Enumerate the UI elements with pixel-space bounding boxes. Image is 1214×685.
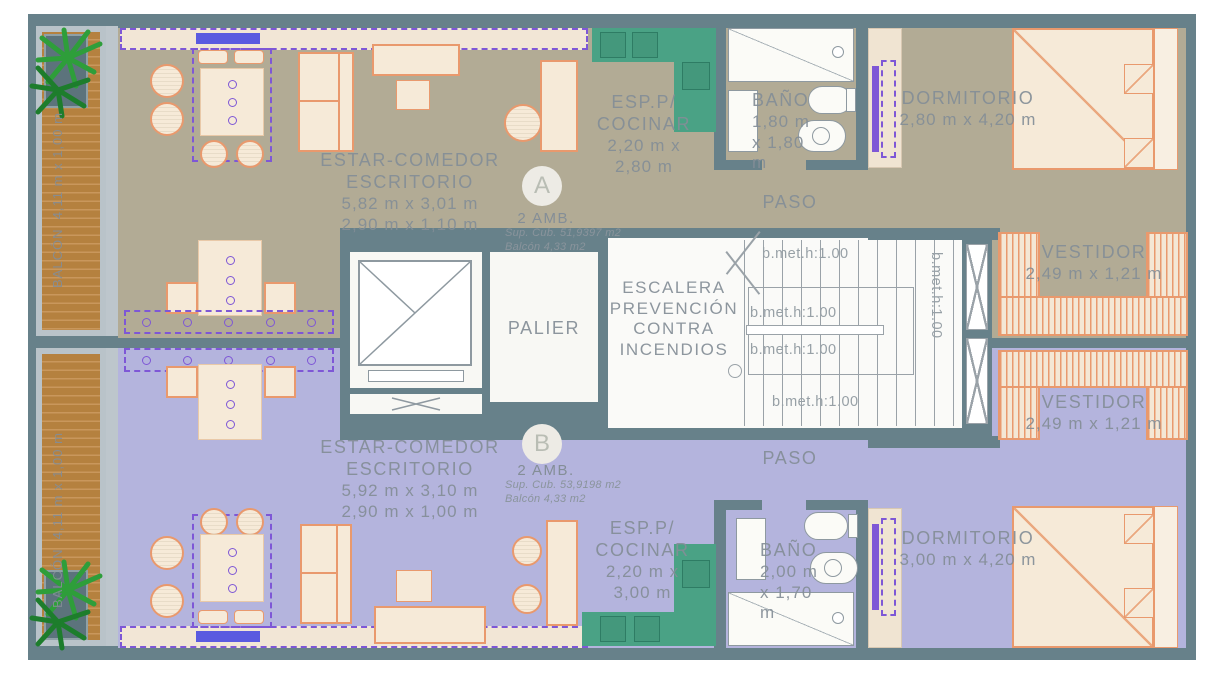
sideboard-b bbox=[374, 606, 486, 644]
vestidor-b-closet-top bbox=[998, 350, 1188, 388]
pouf bbox=[150, 536, 184, 570]
tv-table-b bbox=[396, 570, 432, 602]
shelf-strip-a bbox=[124, 310, 334, 334]
stair-label-line1: ESCALERA bbox=[608, 278, 740, 299]
bedroom-a-label: DORMITORIO 2,80 m x 4,20 m bbox=[878, 88, 1058, 131]
living-b-dim1: 5,92 m x 3,10 m bbox=[290, 481, 530, 502]
table-dot bbox=[228, 584, 237, 593]
pouf bbox=[150, 102, 184, 136]
stair-exit-door-top bbox=[966, 244, 988, 330]
plant-icon bbox=[28, 24, 114, 120]
stair-rail-height-label: b.met.h:1.00 bbox=[750, 342, 837, 358]
living-b-name2: ESCRITORIO bbox=[290, 459, 530, 481]
dining-chair-round bbox=[200, 140, 228, 168]
stair-handrail bbox=[746, 325, 884, 335]
living-a-dim1: 5,82 m x 3,01 m bbox=[290, 194, 530, 215]
sofa-b-cushion-line bbox=[302, 572, 336, 574]
balcony-b-dim: 4,11 m x 1,00 m bbox=[50, 432, 65, 539]
stove-icon bbox=[600, 616, 626, 642]
facade-strip-a bbox=[106, 26, 118, 336]
bed-a-pillow bbox=[1124, 138, 1154, 168]
kitchen-b-dim1: 2,20 m x bbox=[585, 562, 700, 583]
sofa-b-cushion-line bbox=[336, 526, 338, 622]
wall-paso-vestidor-b bbox=[868, 436, 1000, 448]
bath-a-dim2: x 1,80 m bbox=[752, 133, 818, 174]
bedroom-a-dim: 2,80 m x 4,20 m bbox=[878, 110, 1058, 131]
table-dot bbox=[226, 256, 235, 265]
stair-label-line4: INCENDIOS bbox=[608, 340, 740, 361]
sink-icon bbox=[632, 32, 658, 58]
counter-appliance-icon bbox=[682, 62, 710, 90]
living-a-name2: ESCRITORIO bbox=[290, 172, 530, 194]
desk-a bbox=[372, 44, 460, 76]
table-dot bbox=[226, 420, 235, 429]
vestidor-a-closet-bottom bbox=[998, 296, 1188, 336]
table-dot bbox=[228, 566, 237, 575]
pouf bbox=[512, 536, 542, 566]
stair-label-line3: CONTRA bbox=[608, 319, 740, 340]
stair-rail-height-label: b.met.h:1.00 bbox=[772, 394, 859, 410]
shelf-dot bbox=[307, 318, 316, 327]
stair-label-line2: PREVENCIÓN bbox=[608, 299, 740, 320]
plant-icon bbox=[28, 556, 114, 652]
bath-b-label: BAÑO 2,00 m x 1,70 m bbox=[760, 540, 826, 624]
table-dot bbox=[226, 380, 235, 389]
bath-a-label: BAÑO 1,80 m x 1,80 m bbox=[752, 90, 818, 174]
unit-b-badge: B bbox=[522, 424, 562, 464]
kitchen-b-name1: ESP.P/ bbox=[585, 518, 700, 540]
unit-b-balc: Balcón 4,33 m2 bbox=[505, 492, 635, 506]
toilet-b-tank bbox=[848, 514, 858, 538]
kitchen-a-name2: COCINAR bbox=[588, 114, 700, 136]
table-dot bbox=[228, 80, 237, 89]
dining-chair-square bbox=[166, 366, 198, 398]
vestidor-a-dim: 2,49 m x 1,21 m bbox=[1008, 264, 1180, 285]
vestidor-a-label: VESTIDOR 2,49 m x 1,21 m bbox=[1008, 242, 1180, 285]
dining-chair-round bbox=[200, 508, 228, 536]
sink-icon bbox=[634, 616, 660, 642]
living-a-name1: ESTAR-COMEDOR bbox=[290, 150, 530, 172]
wall-bath-top-b bbox=[806, 500, 868, 510]
kitchen-a-dim2: 2,80 m bbox=[588, 157, 700, 178]
living-a-dim2: 2,90 m x 1,10 m bbox=[290, 215, 530, 236]
pouf bbox=[150, 584, 184, 618]
bed-a-pillow bbox=[1124, 64, 1154, 94]
dining-chair-round bbox=[236, 508, 264, 536]
dining-chair bbox=[198, 50, 228, 64]
sofa-a-cushion-line bbox=[300, 100, 338, 102]
balcony-a-dim: 4,11 m x 1,00 m bbox=[50, 112, 65, 219]
kitchen-a-name1: ESP.P/ bbox=[588, 92, 700, 114]
elevator-icon bbox=[358, 260, 472, 366]
bath-b-name: BAÑO bbox=[760, 540, 826, 562]
vestidor-b-label: VESTIDOR 2,49 m x 1,21 m bbox=[1008, 392, 1180, 435]
desk-chair-a bbox=[396, 80, 430, 110]
table-dot bbox=[226, 276, 235, 285]
unit-b-window-blue-bar bbox=[196, 631, 260, 642]
shelf-dot bbox=[224, 318, 233, 327]
table-dot bbox=[226, 400, 235, 409]
cabinet-b bbox=[546, 520, 578, 626]
dining-chair bbox=[198, 610, 228, 624]
stair-rail-height-label: b.met.h:1.00 bbox=[762, 246, 849, 262]
bath-a-name: BAÑO bbox=[752, 90, 818, 112]
living-b-dim2: 2,90 m x 1,00 m bbox=[290, 502, 530, 523]
vestidor-a-name: VESTIDOR bbox=[1008, 242, 1180, 264]
stair-start-circle bbox=[728, 364, 742, 378]
toilet-b bbox=[804, 512, 848, 540]
kitchen-b-name2: COCINAR bbox=[585, 540, 700, 562]
bidet-b-bowl bbox=[824, 559, 842, 577]
balcony-a-label: BALCÓN 4,11 m x 1,00 m bbox=[50, 100, 66, 300]
shelf-dot bbox=[183, 318, 192, 327]
kitchen-b-label: ESP.P/ COCINAR 2,20 m x 3,00 m bbox=[585, 518, 700, 603]
floor-plan-canvas: BALCÓN 4,11 m x 1,00 m BALCÓN 4,11 m x 1… bbox=[0, 0, 1214, 685]
bedroom-b-label: DORMITORIO 3,00 m x 4,20 m bbox=[878, 528, 1058, 571]
living-b-label: ESTAR-COMEDOR ESCRITORIO 5,92 m x 3,10 m… bbox=[290, 437, 530, 522]
shelf-dot bbox=[142, 318, 151, 327]
unit-b-window-strip bbox=[120, 626, 588, 648]
table-dot bbox=[226, 296, 235, 305]
bed-b-headboard bbox=[1154, 506, 1178, 648]
vestidor-b-name: VESTIDOR bbox=[1008, 392, 1180, 414]
pouf bbox=[512, 584, 542, 614]
sofa-a-cushion-line bbox=[338, 54, 340, 150]
bed-b-pillow bbox=[1124, 588, 1154, 618]
shelf-dot bbox=[307, 356, 316, 365]
bath-a-dim1: 1,80 m bbox=[752, 112, 818, 133]
palier-label: PALIER bbox=[490, 318, 598, 340]
unit-b-sup: Sup. Cub. 53,9198 m2 bbox=[505, 478, 635, 492]
bath-b-dim1: 2,00 m bbox=[760, 562, 826, 583]
sofa-a bbox=[298, 52, 354, 152]
dining-chair-round bbox=[236, 140, 264, 168]
unit-a-window-blue-bar bbox=[196, 33, 260, 44]
balcony-b-name: BALCÓN bbox=[50, 549, 65, 608]
table-dot bbox=[228, 116, 237, 125]
duct-bowtie-icon bbox=[390, 396, 442, 412]
bath-b-dim2: x 1,70 m bbox=[760, 583, 826, 624]
stair-rail-height-label: b.met.h:1.00 bbox=[750, 305, 837, 321]
bedroom-b-name: DORMITORIO bbox=[878, 528, 1058, 550]
unit-b-type: 2 AMB. bbox=[516, 462, 576, 479]
dining-chair-square bbox=[264, 366, 296, 398]
kitchen-a-label: ESP.P/ COCINAR 2,20 m x 2,80 m bbox=[588, 92, 700, 177]
shower-head-icon bbox=[832, 46, 844, 58]
dining-chair bbox=[234, 610, 264, 624]
wall-paso-vestidor-a bbox=[868, 228, 1000, 240]
stair-room-label: ESCALERA PREVENCIÓN CONTRA INCENDIOS bbox=[608, 278, 740, 361]
paso-a-label: PASO bbox=[750, 192, 830, 214]
paso-b-label: PASO bbox=[750, 448, 830, 470]
unit-a-sup: Sup. Cub. 51,9397 m2 bbox=[505, 226, 635, 240]
balcony-a-name: BALCÓN bbox=[50, 229, 65, 288]
stove-icon bbox=[600, 32, 626, 58]
sofa-b bbox=[300, 524, 352, 624]
unit-a-badge: A bbox=[522, 166, 562, 206]
living-a-label: ESTAR-COMEDOR ESCRITORIO 5,82 m x 3,01 m… bbox=[290, 150, 530, 235]
bed-b-pillow bbox=[1124, 514, 1154, 544]
dining-chair bbox=[234, 50, 264, 64]
balcony-b-label: BALCÓN 4,11 m x 1,00 m bbox=[50, 420, 66, 620]
unit-a-balc: Balcón 4,33 m2 bbox=[505, 240, 635, 254]
living-b-name1: ESTAR-COMEDOR bbox=[290, 437, 530, 459]
bedroom-a-name: DORMITORIO bbox=[878, 88, 1058, 110]
elevator-door bbox=[368, 370, 464, 382]
desk-a-side bbox=[540, 60, 578, 152]
shower-head-icon bbox=[832, 612, 844, 624]
wall-bath-top-b bbox=[714, 500, 762, 510]
shelf-dot bbox=[142, 356, 151, 365]
shelf-dot bbox=[183, 356, 192, 365]
stair-exit-door-bottom bbox=[966, 338, 988, 424]
kitchen-b-dim2: 3,00 m bbox=[585, 583, 700, 604]
vestidor-b-dim: 2,49 m x 1,21 m bbox=[1008, 414, 1180, 435]
unit-a-window-strip bbox=[120, 28, 588, 50]
shelf-dot bbox=[266, 318, 275, 327]
shelf-dot bbox=[266, 356, 275, 365]
table-dot bbox=[228, 548, 237, 557]
bed-a-headboard bbox=[1154, 28, 1178, 170]
pouf bbox=[504, 104, 542, 142]
kitchen-a-dim1: 2,20 m x bbox=[588, 136, 700, 157]
facade-strip-b bbox=[106, 348, 118, 646]
bedroom-b-dim: 3,00 m x 4,20 m bbox=[878, 550, 1058, 571]
unit-a-type: 2 AMB. bbox=[516, 210, 576, 227]
pouf bbox=[150, 64, 184, 98]
stair-rail-height-label-vertical: b.met.h:1.00 bbox=[928, 252, 944, 422]
table-dot bbox=[228, 98, 237, 107]
wall-bath-right-a bbox=[856, 28, 868, 168]
toilet-a-tank bbox=[846, 88, 856, 112]
